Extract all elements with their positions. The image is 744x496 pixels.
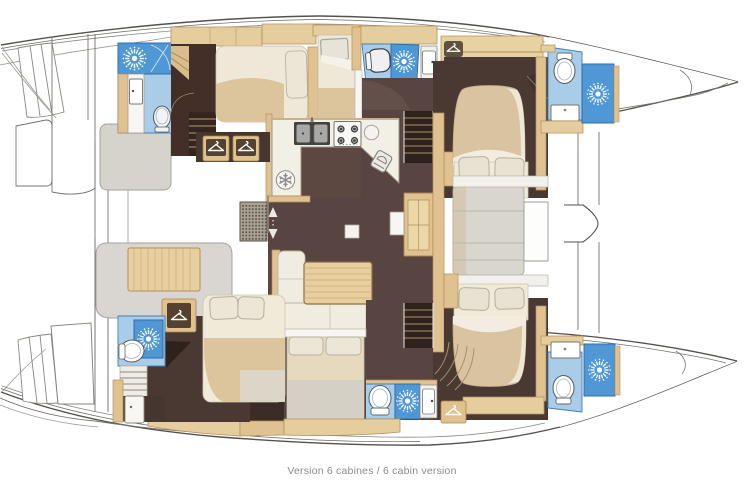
svg-text:Version 6 cabines / 6 cabin ve: Version 6 cabines / 6 cabin version (287, 465, 456, 477)
